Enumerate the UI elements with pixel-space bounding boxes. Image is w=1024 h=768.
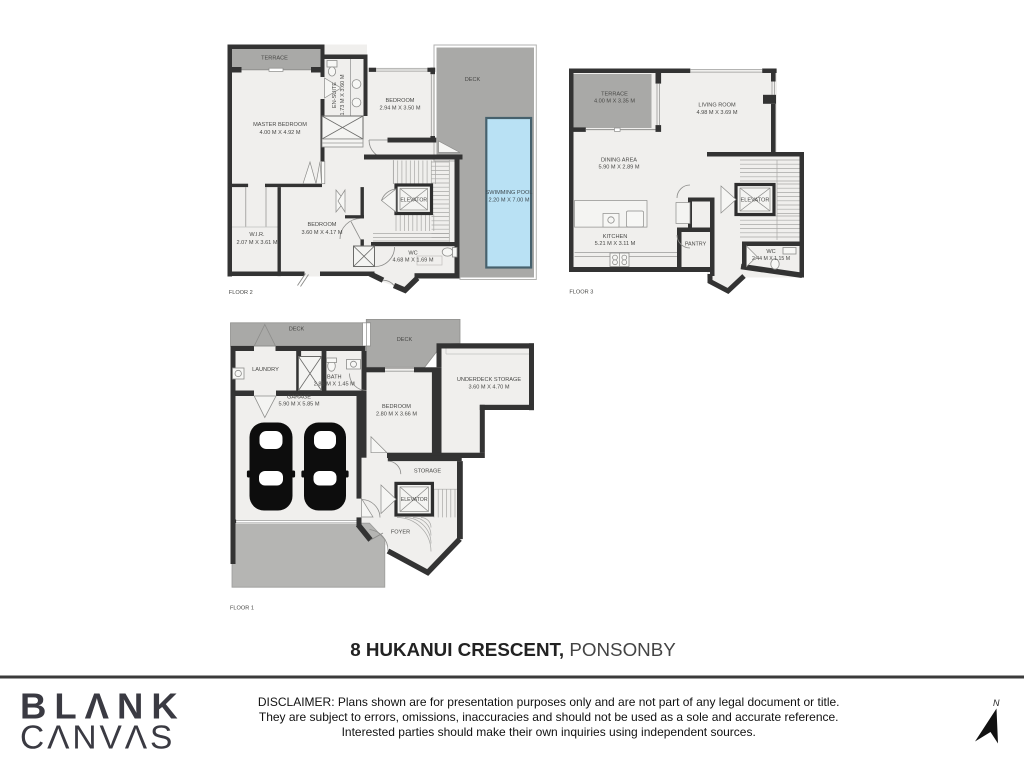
svg-text:5.21 M X 3.11 M: 5.21 M X 3.11 M — [595, 241, 636, 247]
svg-text:BEDROOM: BEDROOM — [382, 404, 411, 410]
svg-text:2.20 M X 7.00 M: 2.20 M X 7.00 M — [488, 198, 529, 204]
svg-text:LAUNDRY: LAUNDRY — [252, 367, 279, 373]
svg-text:FLOOR 3: FLOOR 3 — [569, 290, 593, 296]
svg-text:DECK: DECK — [289, 327, 305, 333]
svg-text:DISCLAIMER: Plans shown are fo: DISCLAIMER: Plans shown are for presenta… — [258, 695, 840, 709]
svg-text:5.90 M X 2.89 M: 5.90 M X 2.89 M — [598, 165, 639, 171]
svg-text:DECK: DECK — [465, 77, 481, 83]
svg-text:GARAGE: GARAGE — [287, 395, 311, 401]
svg-text:SWIMMING POOL: SWIMMING POOL — [486, 190, 533, 196]
svg-text:4.98 M X 3.69 M: 4.98 M X 3.69 M — [696, 110, 737, 116]
svg-text:KITCHEN: KITCHEN — [603, 234, 628, 240]
svg-text:DINING AREA: DINING AREA — [601, 158, 637, 164]
svg-text:4.00 M X 3.35 M: 4.00 M X 3.35 M — [594, 99, 635, 105]
svg-text:FLOOR 1: FLOOR 1 — [230, 606, 254, 612]
svg-text:4.00 M X 4.92 M: 4.00 M X 4.92 M — [259, 130, 300, 136]
svg-text:DECK: DECK — [397, 337, 413, 343]
svg-text:1.73 M X 3.60 M: 1.73 M X 3.60 M — [340, 74, 346, 115]
svg-text:2.88 M X 1.45 M: 2.88 M X 1.45 M — [314, 382, 355, 388]
svg-text:2.94 M X 3.50 M: 2.94 M X 3.50 M — [379, 106, 420, 112]
svg-text:3.60 M X 4.70 M: 3.60 M X 4.70 M — [468, 385, 509, 391]
svg-text:WC: WC — [408, 251, 417, 257]
svg-text:ELEVATOR: ELEVATOR — [401, 497, 428, 503]
svg-text:WC: WC — [766, 249, 775, 255]
svg-text:Interested parties should make: Interested parties should make their own… — [342, 725, 756, 739]
svg-text:MASTER BEDROOM: MASTER BEDROOM — [253, 122, 307, 128]
svg-text:LIVING ROOM: LIVING ROOM — [698, 103, 736, 109]
svg-text:They are subject to errors, om: They are subject to errors, omissions, i… — [259, 710, 839, 724]
svg-text:FLOOR 2: FLOOR 2 — [229, 290, 253, 296]
svg-text:EN-SUITE: EN-SUITE — [332, 82, 338, 108]
svg-text:3.60 M X 4.17 M: 3.60 M X 4.17 M — [301, 230, 342, 236]
svg-text:TERRACE: TERRACE — [601, 92, 628, 98]
svg-text:BEDROOM: BEDROOM — [308, 222, 337, 228]
svg-text:ELEVATOR: ELEVATOR — [741, 198, 770, 204]
svg-text:BEDROOM: BEDROOM — [386, 98, 415, 104]
svg-text:4.68 M X 1.69 M: 4.68 M X 1.69 M — [392, 258, 433, 264]
svg-text:STORAGE: STORAGE — [414, 469, 442, 475]
svg-text:FOYER: FOYER — [391, 530, 410, 536]
svg-text:TERRACE: TERRACE — [261, 56, 288, 62]
svg-text:5.90 M X 5.85 M: 5.90 M X 5.85 M — [278, 402, 319, 408]
svg-text:2.80 M X 3.66 M: 2.80 M X 3.66 M — [376, 412, 417, 418]
svg-text:CΛNVΛS: CΛNVΛS — [20, 720, 175, 757]
svg-text:PANTRY: PANTRY — [685, 242, 707, 248]
svg-text:N: N — [993, 698, 1000, 708]
svg-text:2.44 M X 1.15 M: 2.44 M X 1.15 M — [752, 256, 790, 262]
svg-text:2.07 M X 3.61 M: 2.07 M X 3.61 M — [236, 240, 277, 246]
svg-text:ELEVATOR: ELEVATOR — [400, 197, 427, 203]
svg-text:8 HUKANUI CRESCENT, PONSONBY: 8 HUKANUI CRESCENT, PONSONBY — [350, 639, 676, 660]
svg-text:W.I.R.: W.I.R. — [249, 232, 265, 238]
svg-text:BATH: BATH — [327, 375, 342, 381]
svg-text:UNDERDECK STORAGE: UNDERDECK STORAGE — [457, 377, 522, 383]
